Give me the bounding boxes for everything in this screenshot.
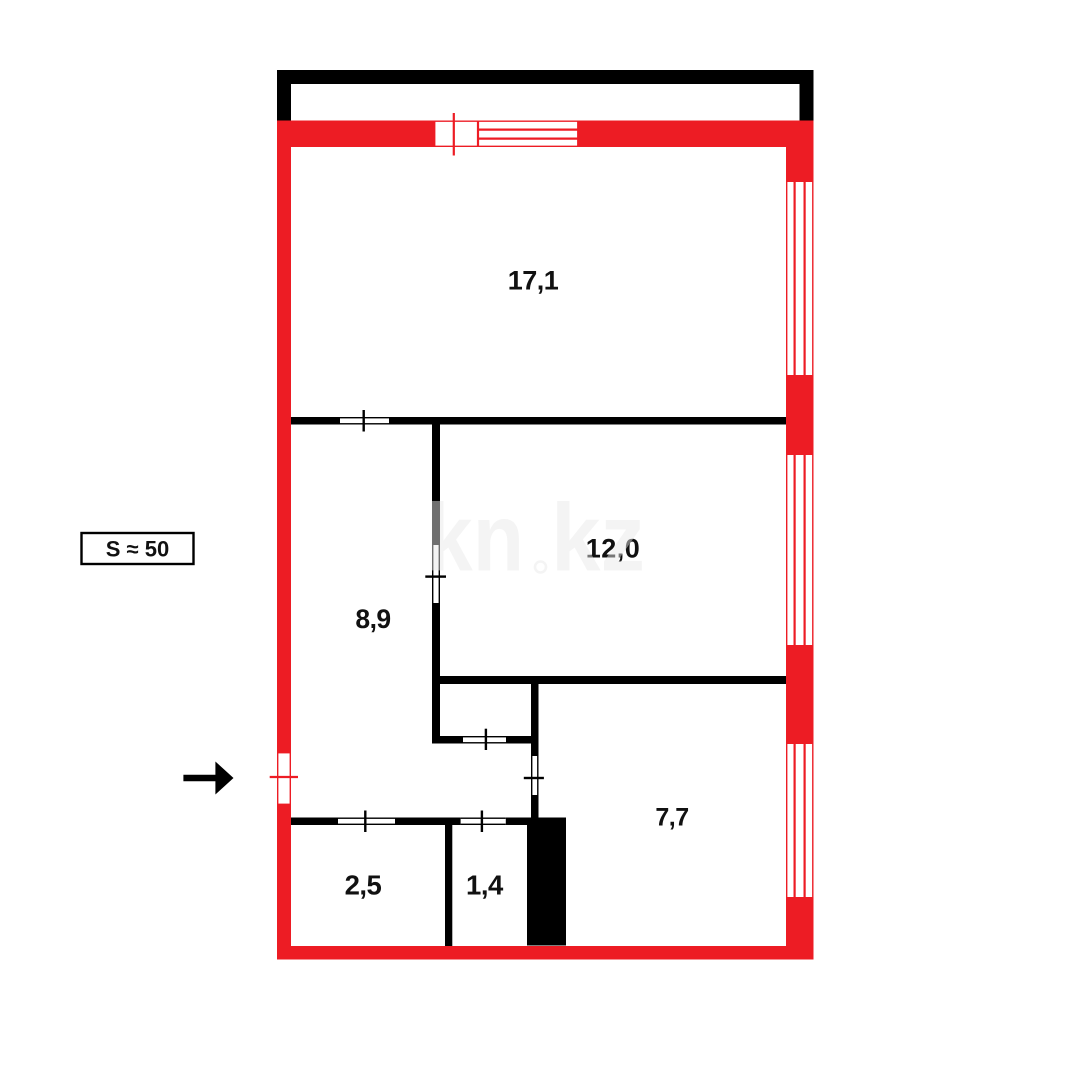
svg-text:8,9: 8,9 xyxy=(355,604,390,634)
svg-text:1,4: 1,4 xyxy=(466,869,504,900)
svg-text:S ≈ 50: S ≈ 50 xyxy=(106,537,169,562)
svg-text:7,7: 7,7 xyxy=(655,804,688,832)
svg-text:kn: kn xyxy=(426,485,524,592)
svg-text:kz: kz xyxy=(551,485,645,592)
svg-text:17,1: 17,1 xyxy=(508,266,559,296)
svg-text:2,5: 2,5 xyxy=(345,869,382,900)
